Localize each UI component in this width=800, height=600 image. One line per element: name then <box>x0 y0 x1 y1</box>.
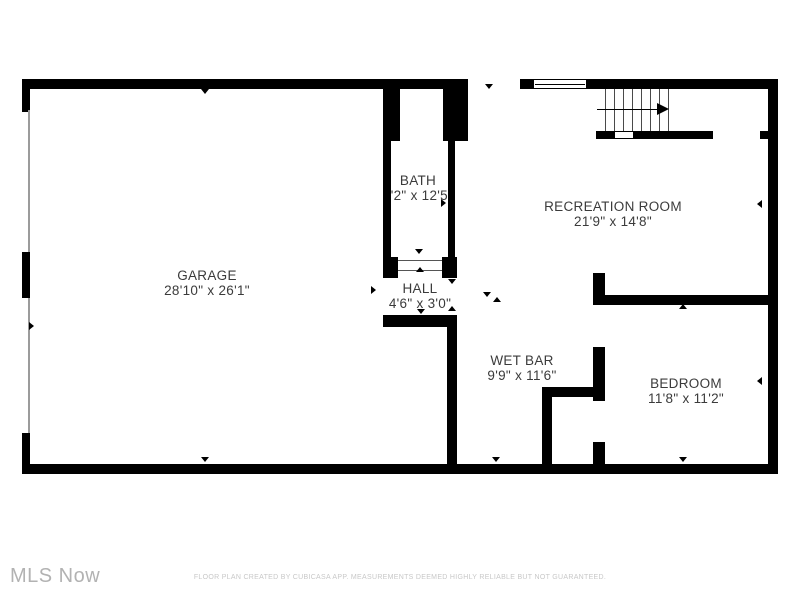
wall-bath-right-lower <box>448 141 455 257</box>
disclaimer-text: FLOOR PLAN CREATED BY CUBICASA APP. MEAS… <box>0 574 800 581</box>
stair-direction-arrow-icon <box>657 103 669 115</box>
wall-bath-right-foot <box>442 257 457 278</box>
room-dimensions: 9'9" x 11'6" <box>487 368 556 383</box>
room-label-wet-bar: WET BAR 9'9" x 11'6" <box>487 353 556 383</box>
measure-tick <box>485 84 493 89</box>
measure-tick <box>29 322 34 330</box>
stair-direction-line <box>597 109 659 110</box>
wall-garage-wetbar-divider <box>447 315 457 464</box>
room-label-hall: HALL 4'6" x 3'0" <box>389 281 451 311</box>
wall-right <box>768 79 778 474</box>
wall-bath-left-lower <box>383 141 391 257</box>
wall-left-upper <box>22 79 30 112</box>
wall-left-lower <box>22 433 30 464</box>
window-pane-line <box>535 84 585 85</box>
measure-tick <box>416 267 424 272</box>
wall-under-stairs <box>634 131 713 139</box>
wall-bedroom-left-low <box>593 442 605 464</box>
wall-stair-stub-right <box>760 131 768 139</box>
measure-tick <box>371 286 376 294</box>
wall-top-right <box>587 79 778 89</box>
measure-tick <box>448 279 456 284</box>
measure-tick <box>679 457 687 462</box>
room-name: RECREATION ROOM <box>544 199 682 214</box>
wall-under-stairs-left <box>596 131 614 139</box>
room-name: WET BAR <box>487 353 556 368</box>
room-label-recreation-room: RECREATION ROOM 21'9" x 14'8" <box>544 199 682 229</box>
wall-bath-right-upper <box>443 88 468 141</box>
measure-tick <box>417 309 425 314</box>
wall-left-mid <box>22 252 30 298</box>
wall-closet-left <box>542 387 552 464</box>
measure-tick <box>757 200 762 208</box>
floor-plan-page: GARAGE 28'10" x 26'1" BATH 4'2" x 12'5" … <box>0 0 800 600</box>
wall-bottom <box>22 464 778 474</box>
wall-top-left <box>22 79 468 89</box>
wall-top-mid <box>520 79 533 89</box>
room-dimensions: 21'9" x 14'8" <box>544 214 682 229</box>
room-name: BATH <box>383 173 453 188</box>
measure-tick <box>415 249 423 254</box>
measure-tick <box>201 457 209 462</box>
room-dimensions: 28'10" x 26'1" <box>164 283 250 298</box>
bath-door-line-1 <box>398 260 442 261</box>
stair-bottom-step <box>614 131 634 139</box>
room-name: BEDROOM <box>648 376 724 391</box>
wall-bedroom-left-stub <box>593 273 605 305</box>
room-name: GARAGE <box>164 268 250 283</box>
wall-hall-bottom <box>383 315 447 327</box>
garage-door-line-2 <box>28 298 30 433</box>
garage-door-line-1 <box>28 110 30 252</box>
room-dimensions: 11'8" x 11'2" <box>648 391 724 406</box>
room-label-bedroom: BEDROOM 11'8" x 11'2" <box>648 376 724 406</box>
wall-bath-left-upper <box>383 88 400 141</box>
measure-tick <box>492 457 500 462</box>
measure-tick <box>757 377 762 385</box>
room-name: HALL <box>389 281 451 296</box>
measure-tick <box>679 304 687 309</box>
room-label-garage: GARAGE 28'10" x 26'1" <box>164 268 250 298</box>
measure-tick <box>483 292 491 297</box>
measure-tick <box>441 199 446 207</box>
measure-tick <box>201 89 209 94</box>
measure-tick <box>448 306 456 311</box>
measure-tick <box>493 297 501 302</box>
wall-bath-left-foot <box>383 257 398 278</box>
